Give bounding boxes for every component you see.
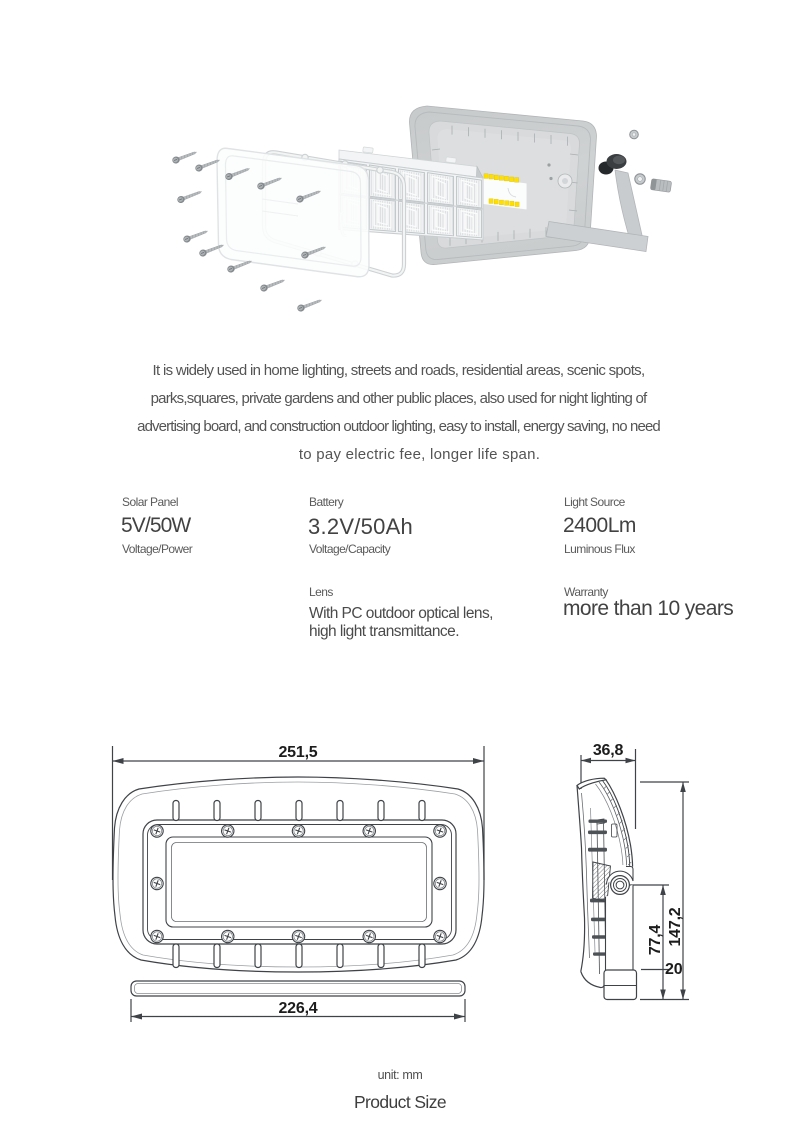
svg-text:77,4: 77,4 xyxy=(647,925,664,956)
svg-text:20: 20 xyxy=(665,961,683,978)
svg-text:226,4: 226,4 xyxy=(278,1000,317,1017)
svg-text:251,5: 251,5 xyxy=(278,744,317,761)
svg-text:36,8: 36,8 xyxy=(593,742,624,759)
svg-text:147,2: 147,2 xyxy=(667,907,684,946)
